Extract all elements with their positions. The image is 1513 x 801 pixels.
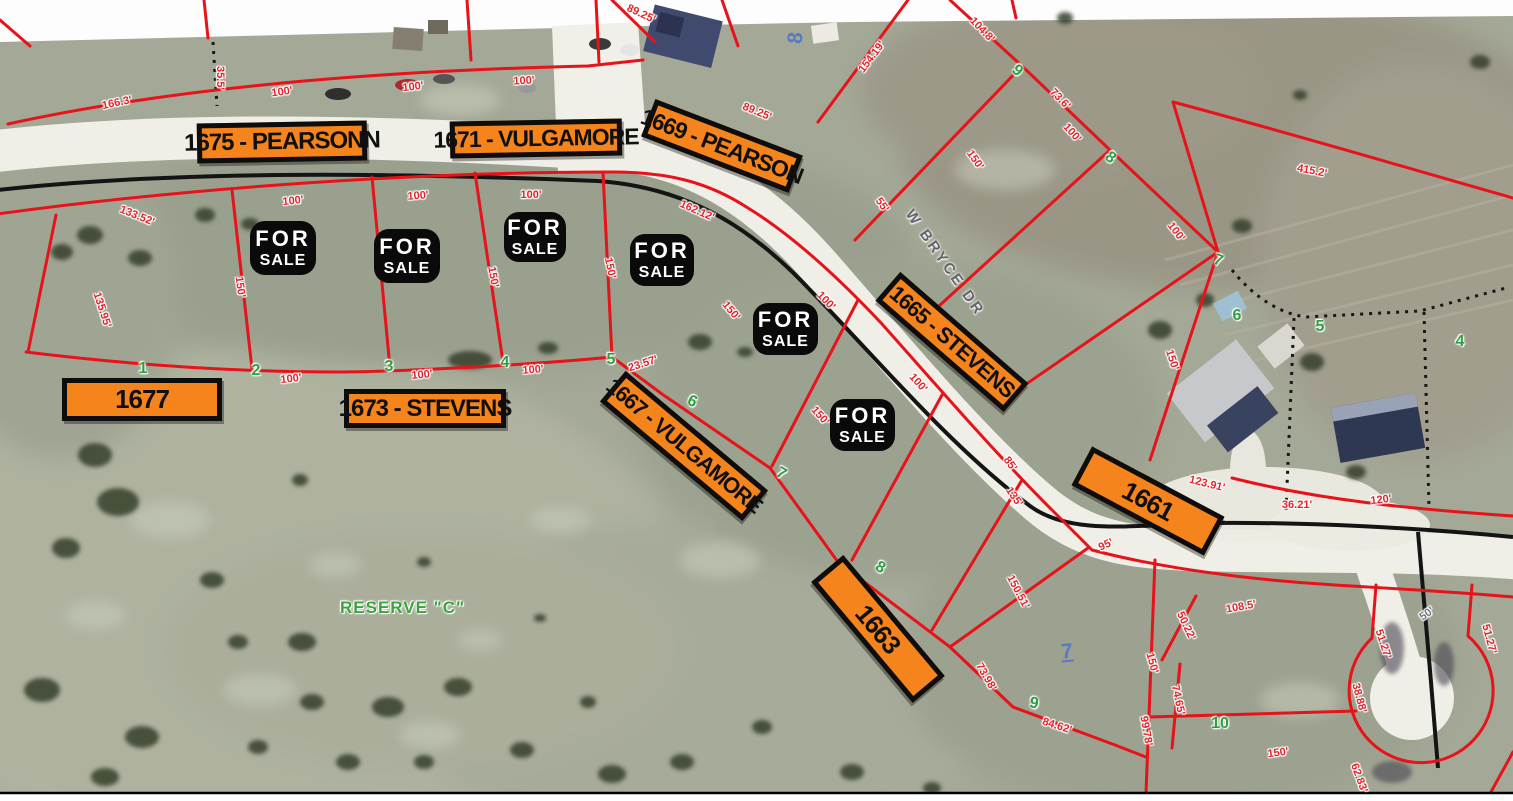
plat-map: 166.3' 35.5' 100' 100' 100' 89.25' 89.25… <box>0 0 1513 801</box>
lot-number: 5 <box>1316 318 1325 336</box>
car <box>325 88 351 100</box>
for-sale-line1: FOR <box>255 228 310 250</box>
dimension-label: 100' <box>282 194 304 208</box>
lot-number: 6 <box>1233 307 1242 325</box>
car <box>589 38 611 50</box>
dimension-label: 120' <box>1370 493 1392 507</box>
lot-number: 5 <box>607 351 616 369</box>
dimension-label: 35.5' <box>214 66 226 90</box>
for-sale-line2: SALE <box>512 242 559 258</box>
lot-number: 1 <box>139 360 148 378</box>
dimension-label: 100' <box>402 80 424 94</box>
outbuilding <box>392 27 423 51</box>
for-sale-line2: SALE <box>839 430 886 446</box>
for-sale-badge: FOR SALE <box>630 234 694 286</box>
lot-number: 2 <box>252 362 261 380</box>
dimension-label: 100' <box>407 189 429 202</box>
dimension-label: 100' <box>522 363 544 376</box>
lot-number-blue: 8 <box>784 31 809 45</box>
for-sale-line2: SALE <box>639 265 686 281</box>
for-sale-line1: FOR <box>835 405 890 427</box>
car <box>620 44 640 56</box>
outbuilding <box>428 20 448 34</box>
for-sale-badge: FOR SALE <box>250 221 316 275</box>
dimension-label: 100' <box>280 372 302 386</box>
dimension-label: 100' <box>411 368 433 382</box>
for-sale-line1: FOR <box>379 236 434 258</box>
dimension-label: 36.21' <box>1282 499 1312 511</box>
for-sale-line1: FOR <box>758 309 813 331</box>
for-sale-badge: FOR SALE <box>504 212 566 262</box>
address-label-1675: 1675 - PEARSONN <box>197 121 368 164</box>
lot-number-blue: 7 <box>1060 640 1074 665</box>
for-sale-line2: SALE <box>384 261 431 277</box>
for-sale-badge: FOR SALE <box>830 399 895 451</box>
aerial-photo-layer <box>0 0 1513 801</box>
for-sale-badge: FOR SALE <box>753 303 818 355</box>
address-label-1673: 1673 - STEVENS <box>344 389 506 428</box>
lot-number: 10 <box>1211 715 1229 733</box>
for-sale-line2: SALE <box>762 334 809 350</box>
dimension-label: 100' <box>513 74 535 87</box>
lot-number: 4 <box>1456 333 1465 351</box>
for-sale-line2: SALE <box>260 253 307 269</box>
dimension-label: 100' <box>521 189 542 201</box>
lot-number: 3 <box>385 358 394 376</box>
for-sale-line1: FOR <box>634 240 689 262</box>
dimension-label: 150' <box>1267 746 1289 760</box>
address-label-1671: 1671 - VULGAMORE <box>450 119 623 159</box>
address-label-1677: 1677 <box>62 378 222 421</box>
for-sale-badge: FOR SALE <box>374 229 440 283</box>
for-sale-line1: FOR <box>507 217 562 239</box>
photo-edge-bottom <box>0 794 1513 801</box>
reserve-label: RESERVE "C" <box>340 598 465 618</box>
shed-white <box>811 22 839 43</box>
lot-number: 4 <box>501 354 510 372</box>
car <box>433 74 455 84</box>
